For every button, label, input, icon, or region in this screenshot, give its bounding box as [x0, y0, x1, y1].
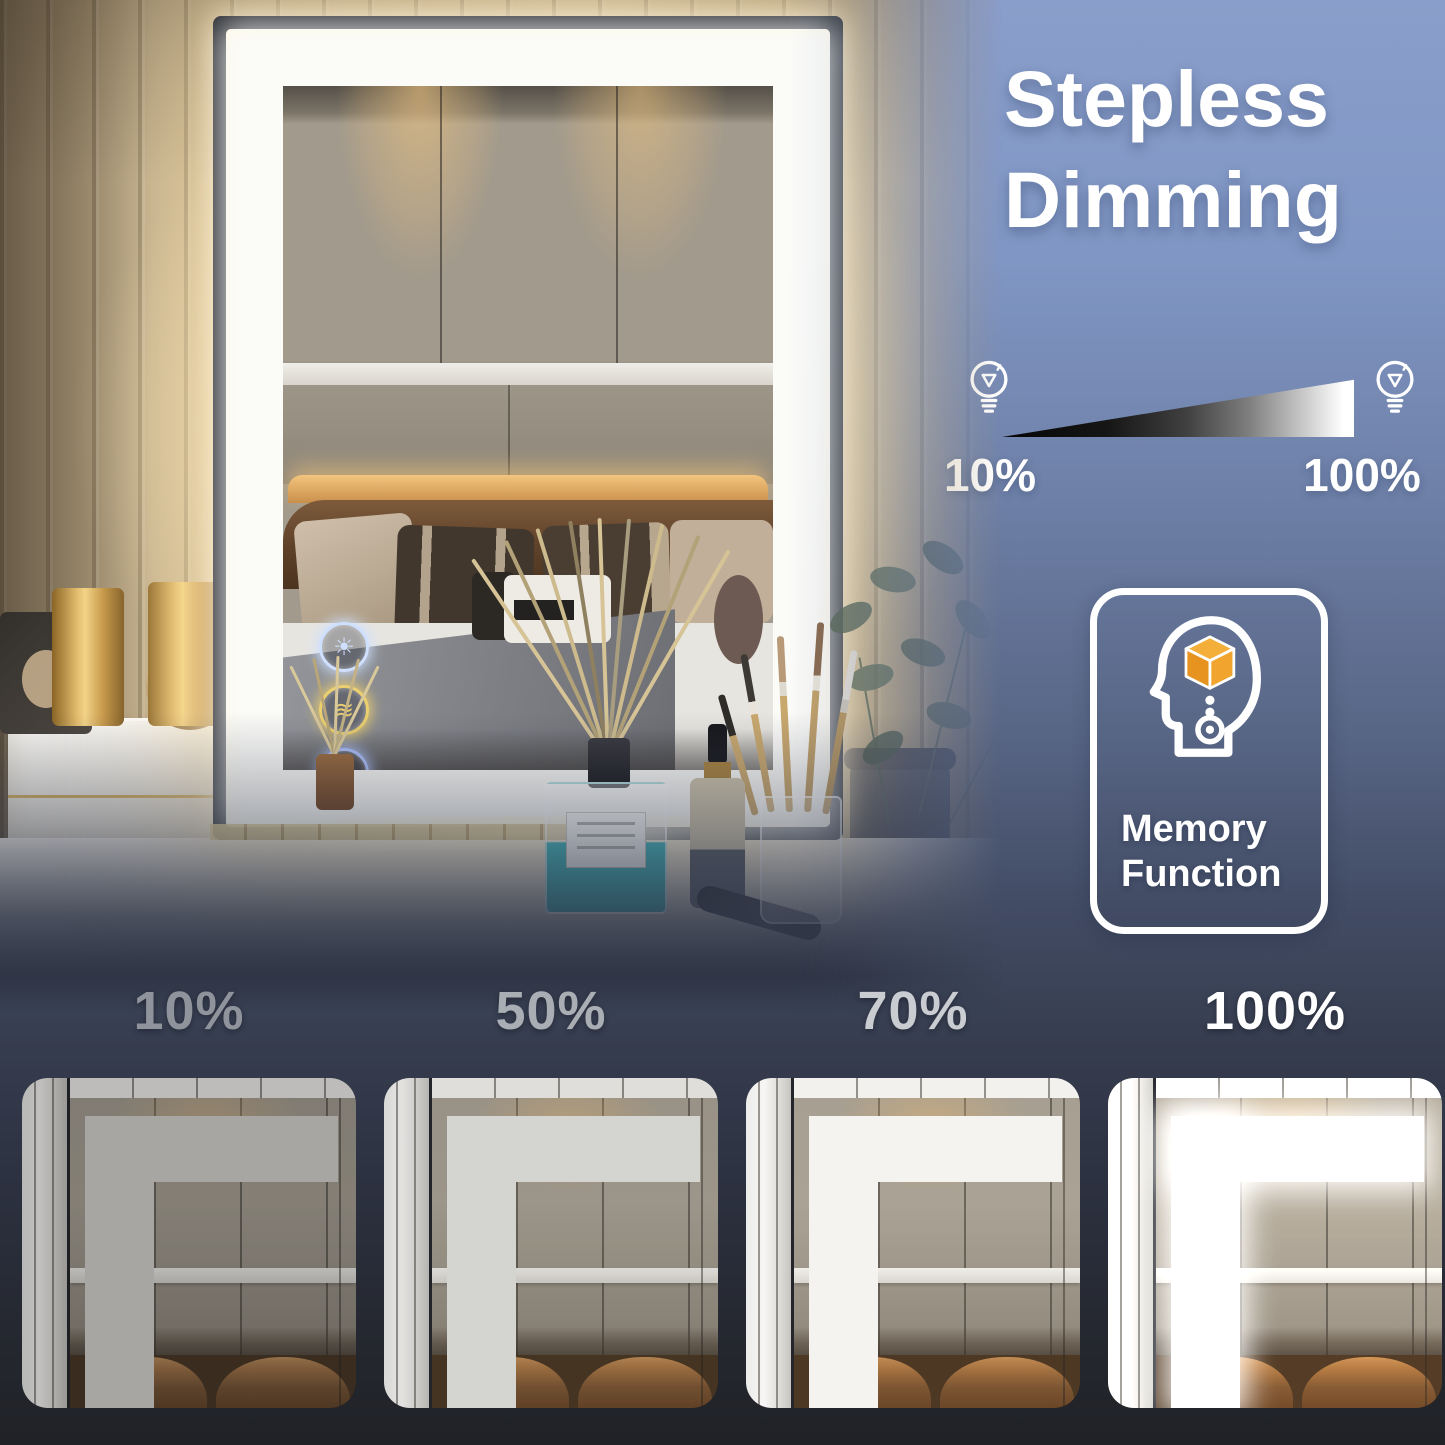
spotlight-glow — [528, 86, 753, 360]
mirror-corner-scene — [746, 1078, 1080, 1408]
brightness-label-100: 100% — [1108, 980, 1442, 1042]
wall-trim — [283, 363, 773, 385]
page-title: Stepless Dimming — [1004, 48, 1342, 250]
led-band-vertical — [85, 1116, 153, 1408]
led-band-vertical — [1171, 1116, 1239, 1408]
product-photo: ☀ ≋ ☼ LA BRUKET 155 — [0, 0, 1012, 1012]
mirror-corner-scene — [384, 1078, 718, 1408]
memory-head-icon — [1140, 609, 1278, 775]
cushion — [714, 575, 763, 664]
brightness-thumbnail-100 — [1108, 1078, 1442, 1408]
memory-function-label: Memory Function — [1121, 807, 1281, 897]
title-line-2: Dimming — [1004, 149, 1342, 250]
bulb-icon — [1368, 356, 1422, 420]
headboard-glow — [288, 475, 768, 504]
spotlight-glow — [312, 86, 528, 360]
title-line-1: Stepless — [1004, 48, 1342, 149]
dimmer-max-label: 100% — [1294, 448, 1430, 502]
brightness-thumbnail-50 — [384, 1078, 718, 1408]
memory-function-card: Memory Function — [1090, 588, 1328, 934]
brightness-thumbnail-10 — [22, 1078, 356, 1408]
gold-canister — [52, 588, 124, 726]
mirror-corner-scene — [1108, 1078, 1442, 1408]
brightness-label-70: 70% — [746, 980, 1080, 1042]
mirror-corner-scene — [22, 1078, 356, 1408]
led-band-vertical — [447, 1116, 515, 1408]
brightness-label-50: 50% — [384, 980, 718, 1042]
led-band-vertical — [809, 1116, 877, 1408]
brightness-label-10: 10% — [22, 980, 356, 1042]
brightness-thumbnail-70 — [746, 1078, 1080, 1408]
